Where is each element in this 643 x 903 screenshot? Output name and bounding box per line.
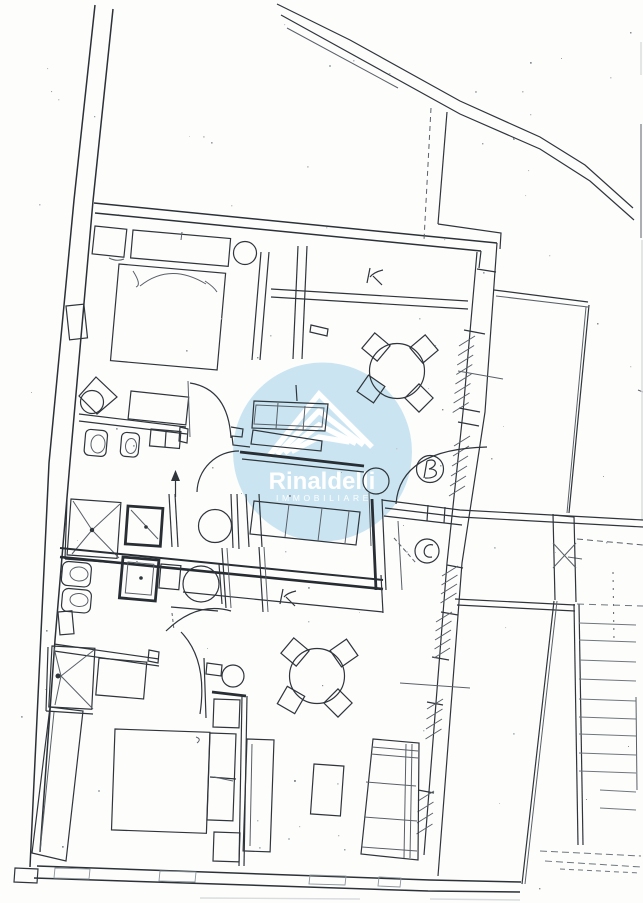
svg-text:IMMOBILIARE: IMMOBILIARE (276, 493, 372, 503)
